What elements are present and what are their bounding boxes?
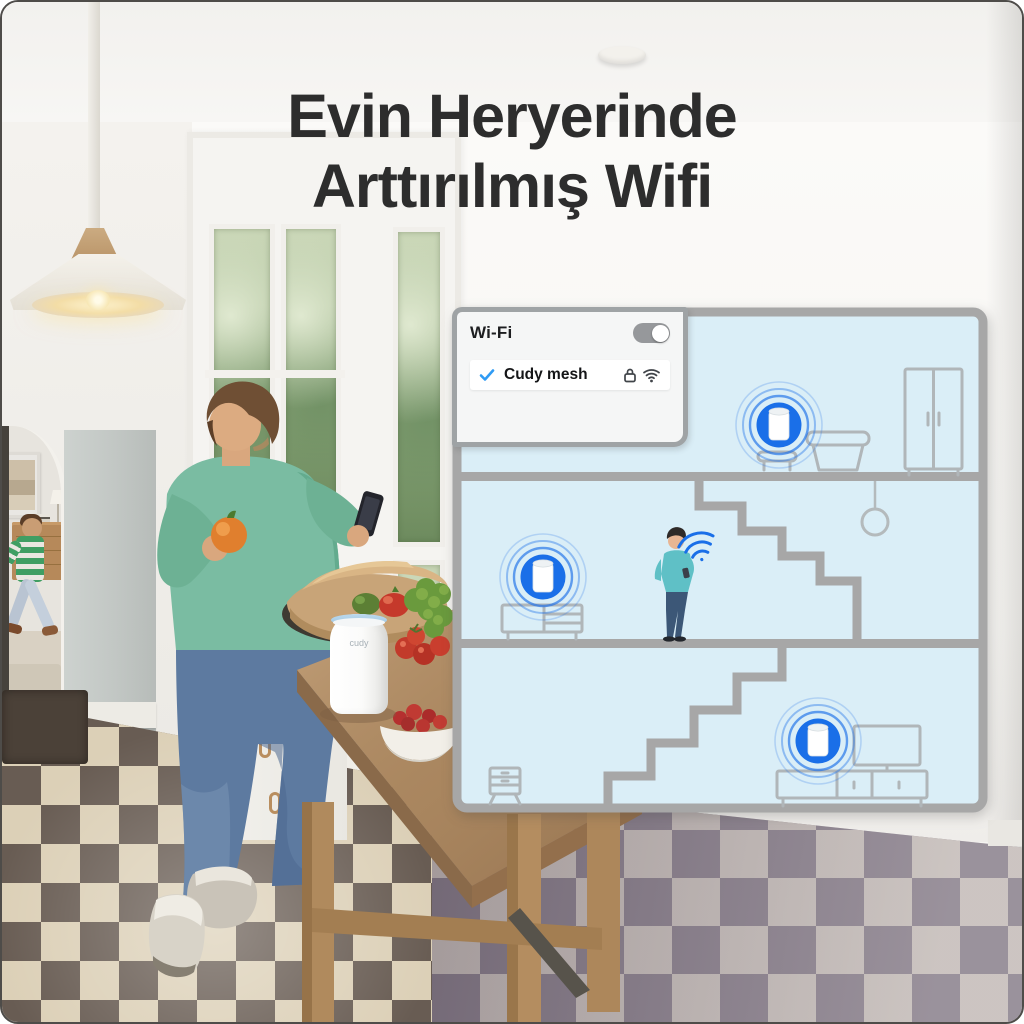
cudy-router-photo: cudy bbox=[330, 614, 388, 714]
mesh-node-top bbox=[736, 382, 822, 468]
marketing-banner: cudy Evin Heryerinde Arttırılmış Wifi bbox=[0, 0, 1024, 1024]
lock-icon bbox=[623, 367, 637, 383]
wifi-icon bbox=[642, 367, 661, 383]
mesh-node-middle bbox=[500, 534, 586, 620]
headline-line2: Arttırılmış Wifi bbox=[162, 152, 862, 222]
wifi-toggle[interactable] bbox=[633, 323, 670, 343]
router-brand-label: cudy bbox=[330, 638, 388, 648]
mesh-node-bottom bbox=[775, 698, 861, 784]
headline: Evin Heryerinde Arttırılmış Wifi bbox=[162, 82, 862, 221]
wifi-settings-card: Wi-Fi Cudy mesh bbox=[452, 307, 688, 447]
check-icon bbox=[479, 368, 495, 382]
headline-line1: Evin Heryerinde bbox=[162, 82, 862, 152]
floor-slab bbox=[461, 472, 979, 481]
wifi-toggle-knob bbox=[652, 325, 669, 342]
green-pepper bbox=[352, 593, 380, 615]
table-leg bbox=[587, 800, 620, 1012]
network-row[interactable]: Cudy mesh bbox=[470, 360, 670, 390]
table-stretcher bbox=[312, 908, 602, 950]
floor-slab bbox=[461, 639, 979, 648]
wifi-label: Wi-Fi bbox=[470, 323, 512, 343]
network-name: Cudy mesh bbox=[504, 366, 623, 384]
